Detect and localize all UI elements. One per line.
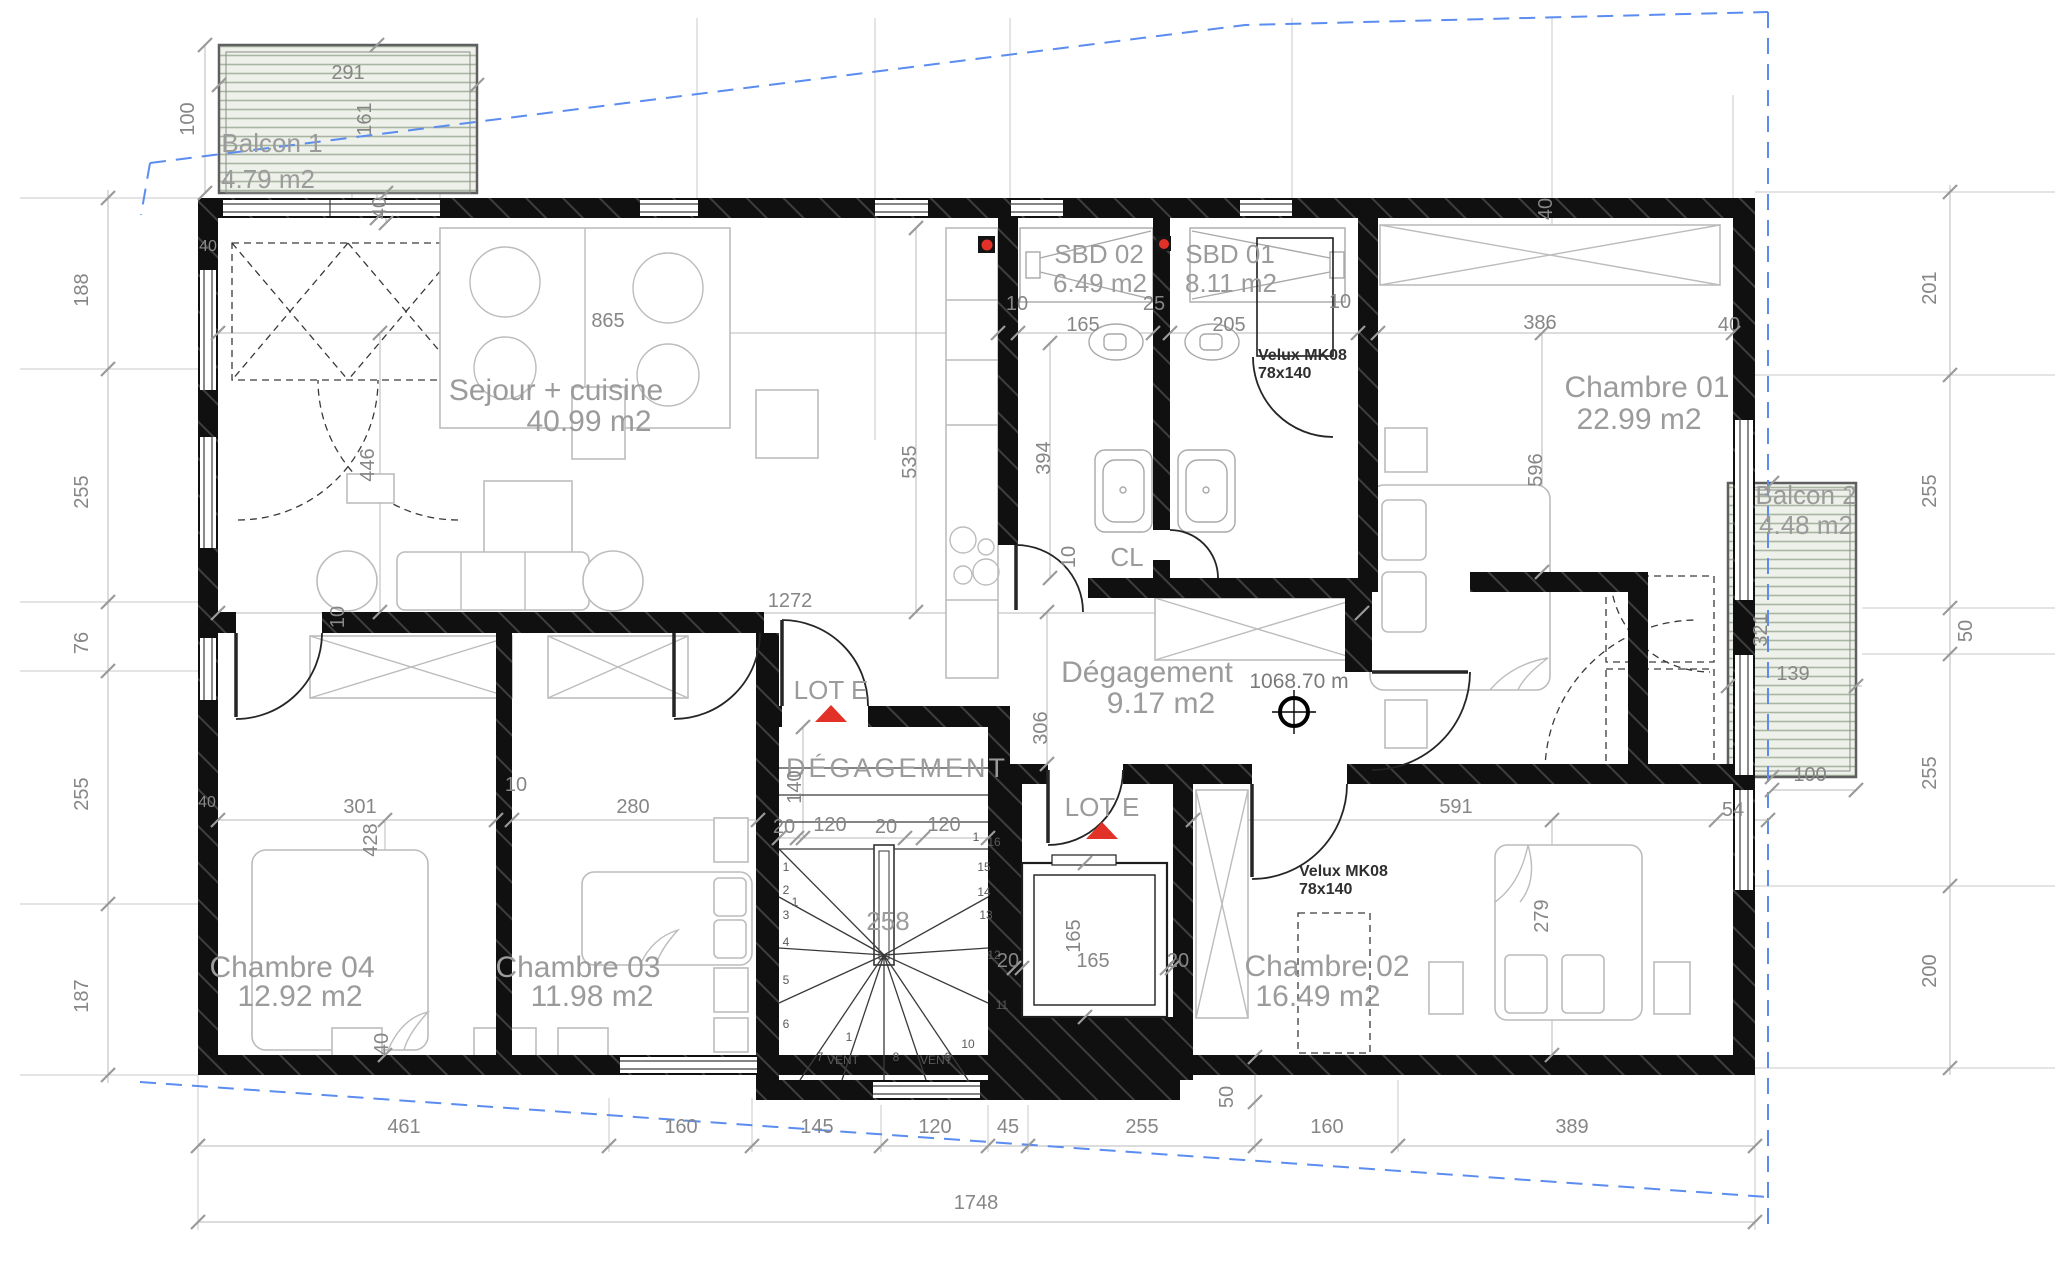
floor-plan-canvas: Balcon 14.79 m2Sejour + cuisine40.99 m2S…: [0, 0, 2072, 1270]
steps-5: 6: [783, 1017, 790, 1031]
steps-3: 4: [783, 935, 790, 949]
steps-4: 5: [783, 973, 790, 987]
door-chambre04: [236, 633, 322, 719]
dims-balcon2-h: 321: [1750, 613, 1772, 646]
balcon2-name: Balcon 2: [1755, 480, 1856, 510]
window-top-terrace-door: [223, 200, 440, 216]
dims-stair-d: 140: [784, 770, 806, 803]
annotations-velux-model: Velux MK08: [1299, 863, 1388, 880]
dims-ch03-w: 280: [616, 796, 649, 818]
floor-plan-drawing: Balcon 14.79 m2Sejour + cuisine40.99 m2S…: [0, 0, 2072, 1270]
left-0: 188: [71, 273, 93, 306]
dims-stair-s120: 120: [927, 814, 960, 836]
steps-15: 16: [987, 835, 1001, 849]
dims-sejour-w2: 1272: [768, 590, 813, 612]
dims-t25: 25: [1143, 293, 1165, 315]
dims-t20: 20: [997, 950, 1019, 972]
annotations-vent: VENT: [827, 1053, 860, 1067]
right-1: 255: [1919, 474, 1941, 507]
steps-8: 9: [945, 1050, 952, 1064]
sejour-area: 40.99 m2: [526, 405, 651, 438]
bottom-2: 145: [800, 1116, 833, 1138]
stairs-mark: 1: [792, 895, 799, 909]
annotations-velux-model: Velux MK08: [1258, 347, 1347, 364]
dims-balcon1-w: 291: [331, 62, 364, 84]
dims-t10: 10: [505, 774, 527, 796]
level-marker: [1272, 690, 1316, 734]
balcon1-name: Balcon 1: [221, 128, 322, 158]
dims-wall40: 40: [1535, 198, 1557, 220]
stairs-mark: 1: [846, 1030, 853, 1044]
bottom-6: 160: [1310, 1116, 1343, 1138]
window-top-3: [875, 200, 928, 216]
sbd02-name: SBD 02: [1054, 239, 1144, 269]
dims-sbd02-w: 165: [1066, 314, 1099, 336]
right-3: 255: [1919, 756, 1941, 789]
steps-2: 3: [783, 908, 790, 922]
window-top-sbd01: [1240, 200, 1292, 216]
stairwell-name: DÉGAGEMENT: [786, 753, 1008, 783]
dims-sbd02-h: 394: [1033, 441, 1055, 474]
dims-t10: 10: [1006, 293, 1028, 315]
dims-wall40: 40: [371, 1033, 393, 1055]
dims-ch02-h: 279: [1531, 899, 1553, 932]
left-1: 255: [71, 475, 93, 508]
sejour-living: [317, 474, 643, 611]
dims-stair-s120: 120: [813, 814, 846, 836]
chambre03-closet: [548, 636, 688, 698]
sbd01-name: SBD 01: [1185, 239, 1275, 269]
steps-1: 2: [783, 883, 790, 897]
chambre01-name: Chambre 01: [1564, 371, 1729, 404]
dims-stair-s20: 20: [773, 816, 795, 838]
dims-stair-s20: 20: [875, 816, 897, 838]
dims-wall40: 40: [199, 238, 217, 255]
dims-stair-w: 258: [866, 906, 909, 936]
annotations-level: 1068.70 m: [1249, 670, 1348, 693]
dims-t54: 54: [1722, 799, 1744, 821]
window-annex-vent: [873, 1082, 980, 1098]
sbd02-area: 6.49 m2: [1053, 268, 1147, 298]
dims-t10: 10: [327, 606, 349, 628]
window-left-2: [200, 437, 216, 548]
hall-area: 9.17 m2: [1107, 687, 1215, 720]
dims-ch01-h: 596: [1525, 453, 1547, 486]
elevator: [1022, 855, 1167, 1017]
bottom-0: 461: [387, 1116, 420, 1138]
dims-t20: 20: [1167, 950, 1189, 972]
dims-balcon1-d: 161: [354, 102, 376, 135]
dims-wall40: 40: [369, 197, 391, 219]
radiator-marker-2: [1156, 236, 1171, 251]
annotations-lot: LOT E: [1065, 792, 1140, 822]
dims-t10: 10: [1058, 546, 1080, 568]
dims-hall-h: 306: [1030, 711, 1052, 744]
dims-ch01-w: 386: [1523, 312, 1556, 334]
sejour-name: Sejour + cuisine: [449, 374, 663, 407]
bottom-7: 389: [1555, 1116, 1588, 1138]
dims-wall40: 40: [1718, 314, 1740, 336]
chambre04-closet: [310, 636, 512, 698]
dims-ch02-w: 591: [1439, 796, 1472, 818]
bottom-4: 45: [997, 1116, 1019, 1138]
steps-12: 13: [979, 908, 993, 922]
hall-closet: [1155, 598, 1360, 660]
balcon2-area: 4.48 m2: [1759, 510, 1853, 540]
chambre01-area: 22.99 m2: [1576, 403, 1701, 436]
dims-sbd01-w: 205: [1212, 314, 1245, 336]
chambre03-furniture: [582, 818, 752, 1052]
dims-ch04-w: 301: [343, 796, 376, 818]
dims-total: 1748: [954, 1192, 999, 1214]
steps-9: 10: [961, 1037, 975, 1051]
stairs-mark: 1: [973, 830, 980, 844]
dims-lift-w: 165: [1076, 950, 1109, 972]
chambre02-area: 16.49 m2: [1255, 980, 1380, 1013]
left-3: 255: [71, 777, 93, 810]
dims-t10: 10: [1329, 291, 1351, 313]
left-2: 76: [71, 632, 93, 654]
door-sbd01: [1170, 530, 1218, 578]
dims-sejour-w: 865: [591, 310, 624, 332]
furniture: [232, 225, 1720, 1058]
dims-wall40: 40: [198, 794, 216, 811]
dims-balcon2-w: 100: [1793, 764, 1826, 786]
chambre02-name: Chambre 02: [1244, 950, 1409, 983]
hall-name: Dégagement: [1061, 656, 1233, 689]
closet-name: CL: [1110, 542, 1143, 572]
steps-10: 11: [996, 998, 1009, 1012]
lot-triangle-2: [1086, 822, 1118, 839]
chambre02-closet: [1196, 790, 1248, 1018]
bottom-5: 255: [1125, 1116, 1158, 1138]
window-right-balcony2-door: [1735, 655, 1753, 775]
dims-balcon2-d: 139: [1776, 663, 1809, 685]
dims-balcon1-h: 100: [177, 102, 199, 135]
dims-t50: 50: [1216, 1086, 1238, 1108]
dims-sejour-h: 446: [357, 448, 379, 481]
window-top-sbd02: [1011, 200, 1063, 216]
right-0: 201: [1919, 271, 1941, 304]
steps-6: 7: [817, 1050, 824, 1064]
right-4: 200: [1919, 954, 1941, 987]
balcon1-area: 4.79 m2: [221, 164, 315, 194]
dims-sejour-h2: 535: [899, 445, 921, 478]
bottom-1: 160: [664, 1116, 697, 1138]
steps-7: 8: [893, 1050, 900, 1064]
bottom-3: 120: [918, 1116, 951, 1138]
radiator-marker-1: [978, 236, 995, 253]
annotations-velux-size: 78x140: [1299, 881, 1352, 898]
dims-lift-h: 165: [1063, 919, 1085, 952]
window-right-ch01: [1735, 420, 1753, 600]
annotations-velux-size: 78x140: [1258, 365, 1311, 382]
steps-0: 1: [783, 860, 790, 874]
chambre03-area: 11.98 m2: [531, 980, 654, 1013]
annotations-lot: LOT E: [794, 675, 869, 705]
window-top-2: [640, 200, 698, 216]
window-left-3: [200, 638, 216, 700]
window-bottom-ch03: [620, 1057, 757, 1073]
steps-14: 15: [977, 860, 991, 874]
chambre04-area: 12.92 m2: [237, 980, 362, 1013]
window-left-1: [200, 270, 216, 390]
lot-triangle-1: [815, 705, 847, 722]
dims-ch04-h: 428: [360, 823, 382, 856]
right-2: 50: [1955, 620, 1977, 642]
chambre01-furniture: [1370, 225, 1720, 775]
steps-13: 14: [977, 885, 991, 899]
left-4: 187: [71, 979, 93, 1012]
sbd01-area: 8.11 m2: [1185, 268, 1277, 298]
